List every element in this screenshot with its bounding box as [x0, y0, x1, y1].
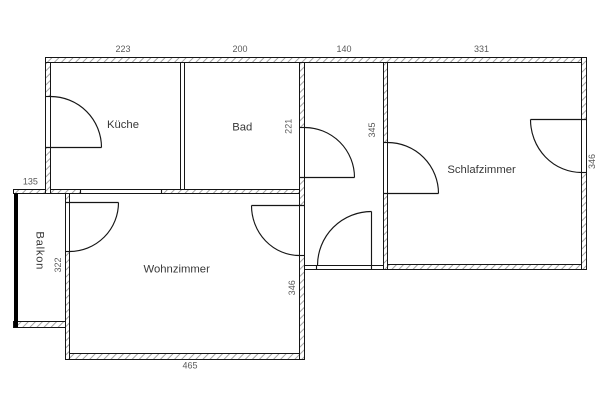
svg-text:346: 346: [587, 154, 597, 169]
svg-text:Wohnzimmer: Wohnzimmer: [144, 263, 211, 275]
svg-text:221: 221: [284, 119, 294, 134]
svg-text:465: 465: [182, 361, 197, 371]
svg-text:135: 135: [23, 177, 38, 187]
svg-text:346: 346: [287, 280, 297, 295]
svg-text:140: 140: [336, 44, 351, 54]
svg-text:Schlafzimmer: Schlafzimmer: [447, 164, 516, 176]
svg-text:Bad: Bad: [232, 122, 252, 134]
svg-text:200: 200: [232, 44, 247, 54]
svg-text:Balkon: Balkon: [34, 231, 46, 270]
svg-text:331: 331: [474, 44, 489, 54]
svg-text:223: 223: [115, 44, 130, 54]
svg-text:Küche: Küche: [107, 119, 139, 131]
svg-text:322: 322: [53, 257, 63, 272]
svg-text:345: 345: [367, 122, 377, 137]
